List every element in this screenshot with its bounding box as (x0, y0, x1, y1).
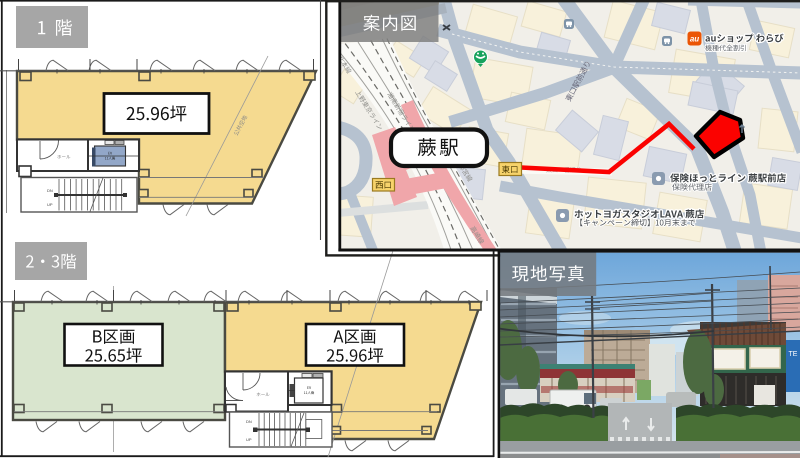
svg-text:UP: UP (47, 202, 53, 207)
svg-text:DN: DN (47, 188, 53, 193)
svg-text:UP: UP (246, 437, 252, 442)
svg-text:au: au (690, 35, 699, 44)
svg-text:DN: DN (246, 419, 252, 424)
svg-text:TE: TE (789, 351, 798, 358)
